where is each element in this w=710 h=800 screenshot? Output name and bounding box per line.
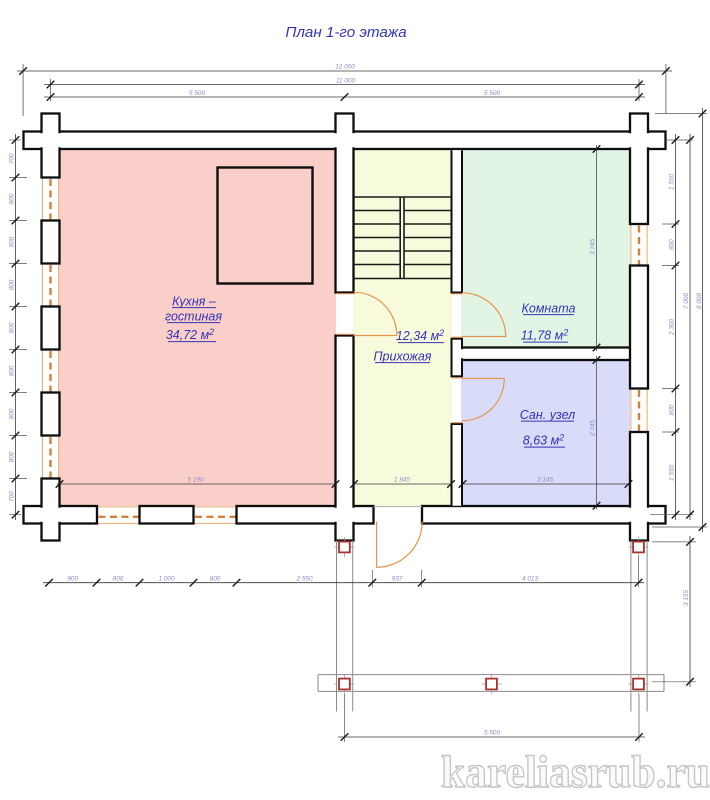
- svg-text:800: 800: [9, 365, 16, 376]
- svg-text:3 145: 3 145: [537, 477, 553, 484]
- svg-text:700: 700: [9, 153, 16, 164]
- svg-text:Прихожая: Прихожая: [374, 350, 432, 364]
- svg-text:800: 800: [669, 404, 676, 415]
- svg-text:800: 800: [9, 408, 16, 419]
- svg-text:800: 800: [9, 193, 16, 204]
- svg-text:2 550: 2 550: [296, 575, 313, 582]
- svg-text:2 300: 2 300: [669, 319, 676, 336]
- svg-text:Кухня –: Кухня –: [172, 295, 217, 309]
- svg-text:1 845: 1 845: [394, 477, 410, 484]
- svg-text:1 550: 1 550: [669, 465, 676, 481]
- svg-text:800: 800: [9, 451, 16, 462]
- svg-text:800: 800: [113, 575, 124, 582]
- svg-text:5 500: 5 500: [484, 730, 500, 737]
- svg-text:8 000: 8 000: [696, 293, 703, 309]
- svg-text:12 000: 12 000: [335, 64, 355, 71]
- svg-text:11,78 м2: 11,78 м2: [521, 328, 568, 343]
- svg-text:11 000: 11 000: [336, 77, 356, 84]
- svg-text:5 500: 5 500: [484, 90, 500, 97]
- svg-text:800: 800: [9, 236, 16, 247]
- svg-text:937: 937: [392, 575, 403, 582]
- svg-text:1 000: 1 000: [159, 575, 175, 582]
- svg-text:34,72 м2: 34,72 м2: [166, 327, 214, 342]
- svg-text:Комната: Комната: [522, 302, 576, 316]
- svg-text:гостиная: гостиная: [165, 310, 222, 324]
- svg-text:1 550: 1 550: [669, 174, 676, 190]
- svg-text:3 155: 3 155: [683, 590, 690, 606]
- svg-text:План 1-го этажа: План 1-го этажа: [285, 24, 406, 41]
- svg-text:800: 800: [9, 279, 16, 290]
- svg-text:12,34 м2: 12,34 м2: [396, 328, 444, 343]
- svg-text:800: 800: [9, 322, 16, 333]
- svg-text:7 000: 7 000: [683, 293, 690, 309]
- svg-text:5 500: 5 500: [189, 90, 205, 97]
- svg-text:900: 900: [67, 575, 78, 582]
- svg-text:700: 700: [9, 491, 16, 502]
- svg-text:Сан. узел: Сан. узел: [520, 408, 575, 422]
- svg-text:kareliasrub.ru: kareliasrub.ru: [441, 746, 710, 797]
- svg-text:8,63 м2: 8,63 м2: [523, 433, 564, 448]
- svg-text:2 745: 2 745: [590, 420, 597, 437]
- svg-text:3 745: 3 745: [590, 239, 597, 255]
- svg-text:800: 800: [210, 575, 221, 582]
- svg-text:5 190: 5 190: [188, 477, 204, 484]
- svg-text:800: 800: [669, 239, 676, 250]
- svg-text:4 013: 4 013: [522, 575, 538, 582]
